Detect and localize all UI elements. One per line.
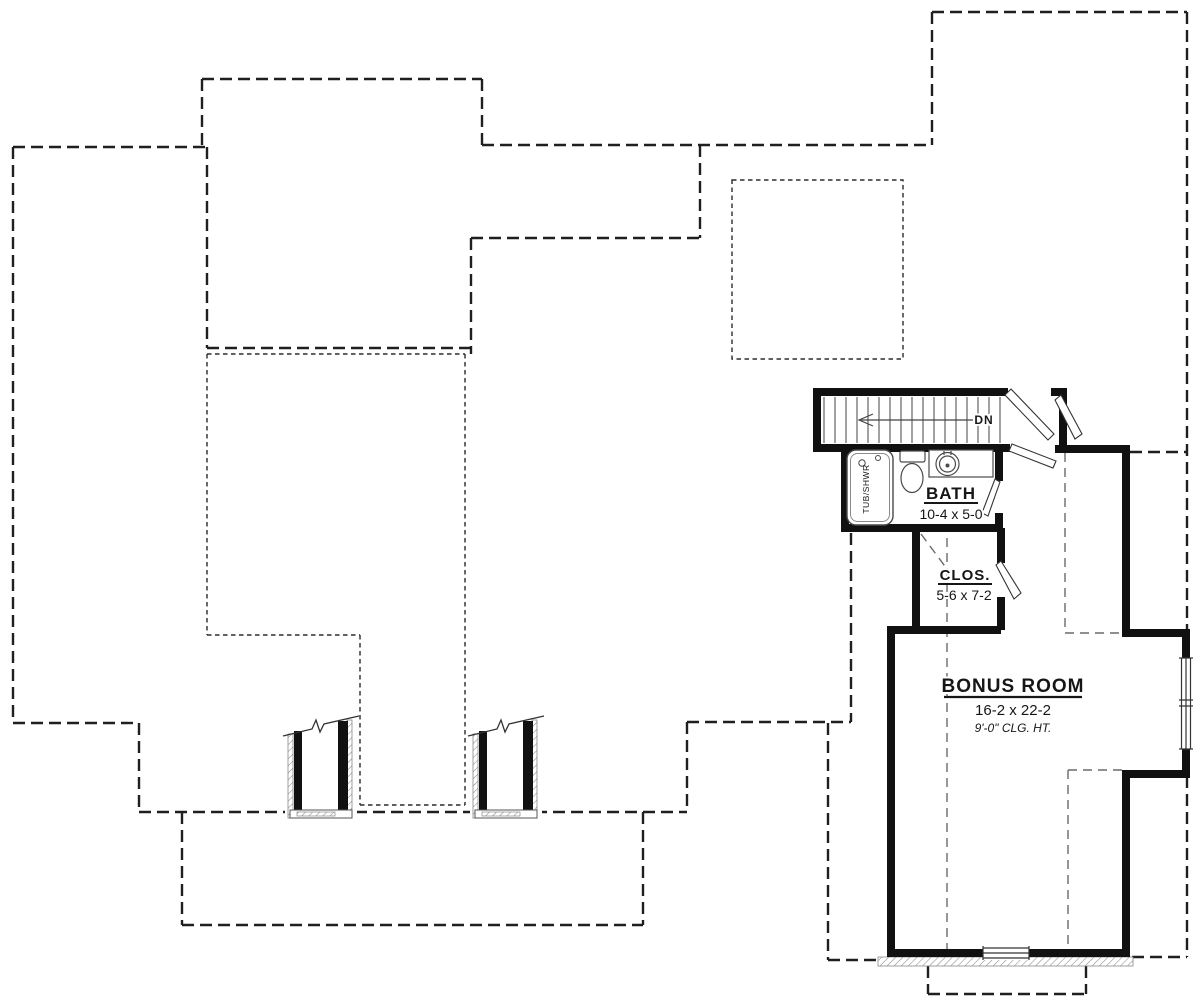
bath-dimensions-label: 10-4 x 5-0 (919, 506, 982, 522)
closet-door-leaf (996, 561, 1021, 599)
stair-bottom-door-leaf (1009, 444, 1056, 468)
closet-room-label: CLOS. (940, 567, 991, 584)
bonus-room-bottom-window (983, 946, 1029, 960)
floor-plan-canvas: DN (0, 0, 1200, 1006)
exterior-roof-outline (13, 12, 1187, 994)
floor-plan-page: DN (0, 0, 1200, 1006)
closet-dimensions-label: 5-6 x 7-2 (936, 587, 991, 603)
bonus-room-right-window (1179, 658, 1193, 749)
vanity-sink (929, 450, 993, 477)
bonus-room-label: BONUS ROOM (942, 676, 1085, 697)
stair-top-door-leaf (1005, 389, 1054, 440)
stairs-dn-label: DN (974, 413, 993, 427)
bonus-dimensions-label: 16-2 x 22-2 (975, 702, 1051, 719)
bath-room-label: BATH (926, 484, 976, 503)
bonus-ceiling-height-label: 9'-0" CLG. HT. (975, 721, 1052, 735)
staircase: DN (824, 397, 1000, 443)
tub-shower-label: TUB/SHWR (861, 464, 871, 513)
door-leaves (982, 389, 1082, 599)
toilet (900, 451, 925, 493)
overhead-fine-outline (207, 180, 903, 805)
bath-door-leaf (982, 479, 1000, 516)
wall-section-right (468, 716, 544, 820)
wall-section-left (283, 716, 359, 820)
